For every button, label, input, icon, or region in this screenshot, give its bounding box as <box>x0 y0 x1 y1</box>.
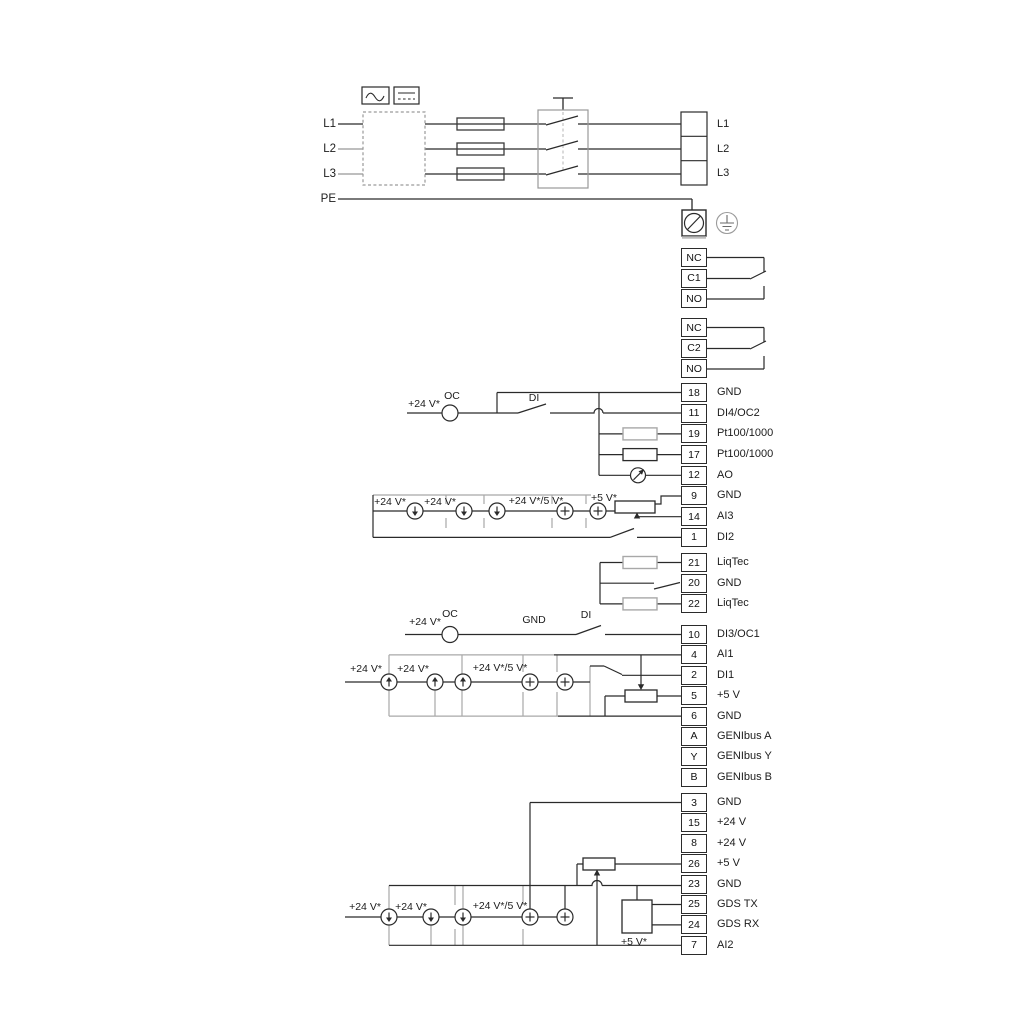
current-source-icon <box>381 674 397 690</box>
label-plus24v: +24 V* <box>409 616 441 628</box>
terminal-number: 9 <box>681 486 707 505</box>
relay-cell: NO <box>681 359 707 378</box>
terminal-label: Pt100/1000 <box>717 424 773 443</box>
terminal-label: Pt100/1000 <box>717 445 773 464</box>
label-plus24v: +24 V* <box>350 663 382 675</box>
terminal-label: +5 V <box>717 686 740 705</box>
terminal-label: GND <box>717 383 741 402</box>
label-plus24v: +24 V* <box>395 901 427 913</box>
terminal-number: 23 <box>681 875 707 894</box>
terminal-label: LiqTec <box>717 553 749 572</box>
rcd-ac-icon <box>362 87 389 104</box>
terminal-label: DI2 <box>717 528 734 547</box>
wiring-diagram: L1 L2 L3 PE L1 L2 L3 NC C1 NO NC C2 NO 1… <box>0 0 1024 1024</box>
open-collector-icon <box>442 627 458 643</box>
output-label-l2: L2 <box>717 143 729 155</box>
relay1-contact-icon <box>707 258 766 300</box>
relay-cell: NO <box>681 289 707 308</box>
output-label-l1: L1 <box>717 118 729 130</box>
potentiometer-a <box>615 501 655 519</box>
input-label-l2: L2 <box>323 143 336 155</box>
terminal-label: GND <box>717 875 741 894</box>
pt100-resistor <box>623 428 657 461</box>
terminal-number: B <box>681 768 707 787</box>
input-label-l1: L1 <box>323 118 336 130</box>
gds-sensor-box <box>622 900 652 933</box>
terminal-label: +24 V <box>717 813 746 832</box>
relay-cell: C1 <box>681 269 707 288</box>
open-collector-icon <box>442 405 458 421</box>
voltage-source-icon <box>557 674 573 690</box>
terminal-number: A <box>681 727 707 746</box>
terminal-label: +24 V <box>717 834 746 853</box>
terminal-number: 6 <box>681 707 707 726</box>
label-plus24v-or-5v: +24 V*/5 V* <box>473 900 528 912</box>
label-plus5v: +5 V* <box>591 492 617 504</box>
label-plus24v: +24 V* <box>397 663 429 675</box>
terminal-label: DI3/OC1 <box>717 625 760 644</box>
terminal-number: 25 <box>681 895 707 914</box>
current-source-icon <box>427 674 443 690</box>
potentiometer-c <box>583 858 615 876</box>
terminal-number: 1 <box>681 528 707 547</box>
relay-cell: NC <box>681 248 707 267</box>
current-source-icon <box>455 674 471 690</box>
terminal-label: GND <box>717 574 741 593</box>
terminal-label: GND <box>717 707 741 726</box>
terminal-label: DI1 <box>717 666 734 685</box>
terminal-label: GND <box>717 793 741 812</box>
pe-terminal <box>682 210 706 238</box>
terminal-number: 24 <box>681 915 707 934</box>
terminal-number: Y <box>681 747 707 766</box>
current-source-icon <box>455 909 471 925</box>
terminal-label: GND <box>717 486 741 505</box>
rcd-dc-icon <box>394 87 419 104</box>
label-plus24v-or-5v: +24 V*/5 V* <box>473 662 528 674</box>
terminal-label: GDS TX <box>717 895 758 914</box>
label-plus24v: +24 V* <box>408 398 440 410</box>
terminal-label: GENIbus Y <box>717 747 772 766</box>
voltage-source-icon <box>557 909 573 925</box>
terminal-label: AI1 <box>717 645 734 664</box>
relay-cell: C2 <box>681 339 707 358</box>
terminal-number: 18 <box>681 383 707 402</box>
terminal-label: DI4/OC2 <box>717 404 760 423</box>
terminal-label: GENIbus B <box>717 768 772 787</box>
terminal-number: 20 <box>681 574 707 593</box>
label-plus24v: +24 V* <box>424 496 456 508</box>
terminal-number: 10 <box>681 625 707 644</box>
terminal-number: 11 <box>681 404 707 423</box>
terminal-number: 19 <box>681 424 707 443</box>
earth-icon <box>717 213 738 234</box>
terminal-label: AI3 <box>717 507 734 526</box>
label-plus24v: +24 V* <box>374 496 406 508</box>
label-di: DI <box>581 609 592 621</box>
input-label-l3: L3 <box>323 168 336 180</box>
terminal-number: 5 <box>681 686 707 705</box>
label-gnd: GND <box>522 614 545 626</box>
terminal-label: +5 V <box>717 854 740 873</box>
label-plus5v: +5 V* <box>621 936 647 948</box>
terminal-number: 14 <box>681 507 707 526</box>
input-label-pe: PE <box>321 193 336 205</box>
label-oc: OC <box>444 390 460 402</box>
terminal-number: 8 <box>681 834 707 853</box>
terminal-label: AO <box>717 466 733 485</box>
terminal-label: LiqTec <box>717 594 749 613</box>
wiring-svg <box>0 0 1024 1024</box>
power-wires <box>338 98 692 210</box>
relay-cell: NC <box>681 318 707 337</box>
current-source-icon <box>489 503 505 519</box>
terminal-number: 2 <box>681 666 707 685</box>
terminal-number: 17 <box>681 445 707 464</box>
terminal-label: AI2 <box>717 936 734 955</box>
terminal-label: GENIbus A <box>717 727 771 746</box>
relay2-contact-icon <box>707 328 766 370</box>
terminal-number: 22 <box>681 594 707 613</box>
terminal-label: GDS RX <box>717 915 759 934</box>
ao-meter-icon <box>631 468 646 483</box>
voltage-source-icon <box>522 674 538 690</box>
drive-box <box>363 112 425 185</box>
label-plus24v: +24 V* <box>349 901 381 913</box>
terminal-number: 15 <box>681 813 707 832</box>
label-di: DI <box>529 392 540 404</box>
power-output-block <box>681 112 707 185</box>
potentiometer-b <box>625 684 657 702</box>
terminal-number: 7 <box>681 936 707 955</box>
power-wires-gray <box>338 149 363 174</box>
output-label-l3: L3 <box>717 167 729 179</box>
terminal-number: 3 <box>681 793 707 812</box>
voltage-source-icon <box>590 503 606 519</box>
label-oc: OC <box>442 608 458 620</box>
terminal-number: 4 <box>681 645 707 664</box>
terminal-number: 12 <box>681 466 707 485</box>
current-source-icon <box>407 503 423 519</box>
current-source-icon <box>456 503 472 519</box>
terminal-number: 26 <box>681 854 707 873</box>
terminal-number: 21 <box>681 553 707 572</box>
label-plus24v-or-5v: +24 V*/5 V* <box>509 495 564 507</box>
